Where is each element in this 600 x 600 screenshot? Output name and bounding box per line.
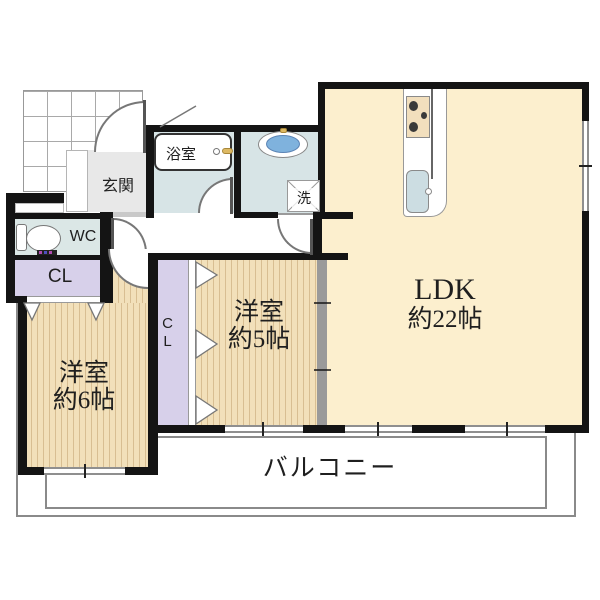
- window-tick: [84, 464, 86, 478]
- stove-burner-small: [421, 112, 427, 119]
- toilet-bowl: [26, 225, 61, 252]
- entrance-threshold: [110, 212, 148, 217]
- window-tick: [377, 422, 379, 436]
- kitchen-sink-knob: [425, 188, 432, 195]
- partition-bedroom5-ldk: [317, 260, 327, 425]
- window-tick: [262, 422, 264, 436]
- balcony-label: バルコニー: [230, 455, 430, 482]
- window-tick: [506, 422, 508, 436]
- toilet-control-dot: [49, 251, 52, 254]
- closet-hall-door-track: [14, 296, 103, 303]
- hall-door-leaf: [111, 218, 114, 253]
- washbasin-faucet: [280, 128, 287, 133]
- wall-toilet-closet: [7, 255, 103, 260]
- bedroom6-label: 洋室 約6帖: [24, 360, 144, 414]
- bathroom-door-leaf: [230, 177, 233, 214]
- wall-left-stub: [15, 193, 64, 203]
- washbasin-bowl: [266, 135, 300, 153]
- entrance-door-leaf: [143, 100, 146, 153]
- wall-toilet-top: [7, 213, 103, 219]
- room-size: 約5帖: [200, 326, 318, 353]
- window-tick: [579, 165, 592, 167]
- room-size: 約6帖: [24, 387, 144, 414]
- entrance-label: 玄関: [88, 172, 148, 196]
- room-size: 約22帖: [365, 306, 525, 333]
- room-name: 洋室: [24, 360, 144, 387]
- laundry-label: 洗: [292, 188, 316, 208]
- bathtub-faucet: [222, 148, 233, 154]
- bedroom5-label: 洋室 約5帖: [200, 299, 318, 353]
- stove-burner: [409, 122, 418, 132]
- toilet-control-dot: [39, 251, 42, 254]
- wall-bath-washroom: [234, 126, 241, 218]
- toilet-control-dot: [44, 251, 47, 254]
- closet-inner-label: CL: [160, 315, 175, 351]
- wall-stub-vertical: [313, 218, 322, 255]
- room-name: LDK: [365, 274, 525, 306]
- bathroom-label: 浴室: [158, 143, 204, 164]
- ldk-floor: [318, 89, 582, 427]
- wall-top-ldk: [318, 82, 589, 89]
- washroom-door-leaf: [310, 219, 313, 255]
- wall-washroom-bottom: [241, 212, 278, 218]
- meter-niche: [15, 203, 64, 213]
- closet-inner-door-track: [188, 260, 196, 427]
- closet-hall-label: CL: [40, 266, 80, 288]
- window-bedroom5: [225, 425, 303, 433]
- washroom-door-lintel: [278, 213, 313, 215]
- bathtub-drain: [213, 148, 220, 155]
- wall-hall-bottom: [148, 253, 348, 260]
- stove-burner: [409, 101, 418, 111]
- room-name: 洋室: [200, 299, 318, 326]
- floorplan: LDK 約22帖 洋室 約5帖 洋室 約6帖 バルコニー 玄関 浴室 WC CL…: [0, 0, 600, 600]
- entrance-step: [66, 150, 88, 212]
- wall-bedroom6-right: [148, 253, 158, 475]
- kitchen-counter-divider: [431, 89, 433, 179]
- window-ldk-right: [465, 425, 545, 433]
- toilet-label: WC: [67, 228, 99, 246]
- ldk-label: LDK 約22帖: [365, 274, 525, 333]
- vent-mark: [160, 106, 196, 127]
- wall-left-upper: [6, 193, 15, 303]
